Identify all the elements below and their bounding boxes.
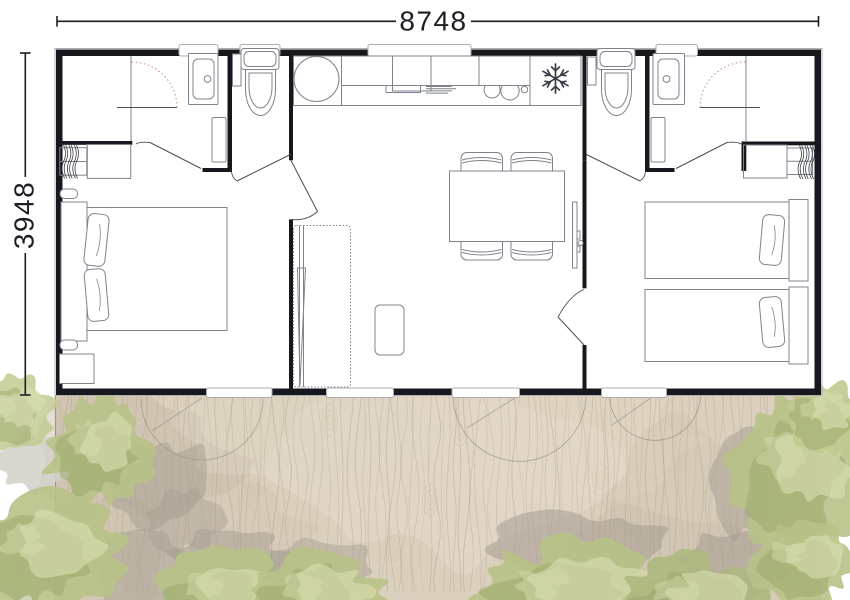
svg-text:8748: 8748 xyxy=(399,6,467,37)
svg-text:3948: 3948 xyxy=(9,181,40,249)
